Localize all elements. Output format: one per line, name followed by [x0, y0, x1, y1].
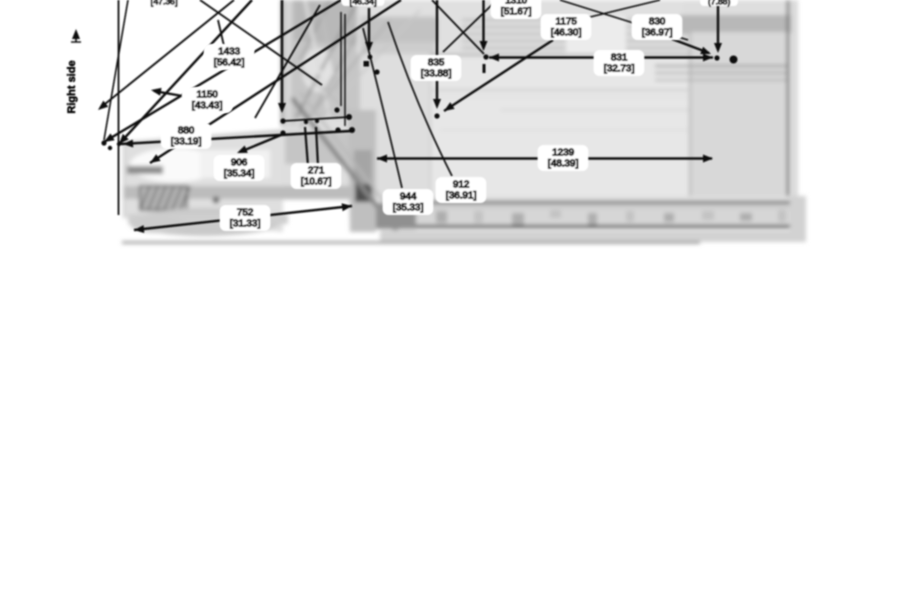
svg-text:271: 271 — [308, 165, 325, 176]
svg-text:[43.43]: [43.43] — [192, 101, 223, 112]
svg-text:(7.88): (7.88) — [708, 0, 730, 7]
svg-text:[31.33]: [31.33] — [230, 219, 261, 230]
svg-text:[47.36]: [47.36] — [150, 0, 177, 7]
svg-text:1433: 1433 — [218, 46, 240, 57]
svg-text:752: 752 — [237, 207, 254, 218]
svg-text:944: 944 — [400, 191, 417, 202]
svg-text:1175: 1175 — [555, 16, 577, 27]
svg-text:831: 831 — [611, 52, 628, 63]
svg-text:1310: 1310 — [505, 0, 527, 6]
svg-text:906: 906 — [231, 157, 248, 168]
svg-text:[48.39]: [48.39] — [548, 159, 579, 170]
svg-text:[32.73]: [32.73] — [604, 64, 635, 75]
svg-text:880: 880 — [178, 125, 195, 136]
svg-text:[46.30]: [46.30] — [551, 28, 582, 39]
svg-text:830: 830 — [649, 16, 666, 27]
svg-text:[56.42]: [56.42] — [214, 58, 245, 69]
svg-text:[33.19]: [33.19] — [171, 137, 202, 148]
svg-text:[51.67]: [51.67] — [501, 7, 532, 18]
svg-text:[33.88]: [33.88] — [421, 69, 452, 80]
svg-text:[46.34]: [46.34] — [349, 0, 376, 7]
svg-text:[10.67]: [10.67] — [301, 177, 332, 188]
svg-text:[35.34]: [35.34] — [224, 169, 255, 180]
svg-text:1239: 1239 — [552, 147, 574, 158]
svg-text:[36.91]: [36.91] — [446, 191, 477, 202]
svg-text:[36.97]: [36.97] — [642, 28, 673, 39]
svg-text:[35.33]: [35.33] — [393, 203, 424, 214]
svg-text:835: 835 — [428, 57, 445, 68]
svg-text:912: 912 — [453, 179, 470, 190]
svg-text:Right side: Right side — [66, 60, 78, 113]
svg-text:1150: 1150 — [196, 89, 218, 100]
